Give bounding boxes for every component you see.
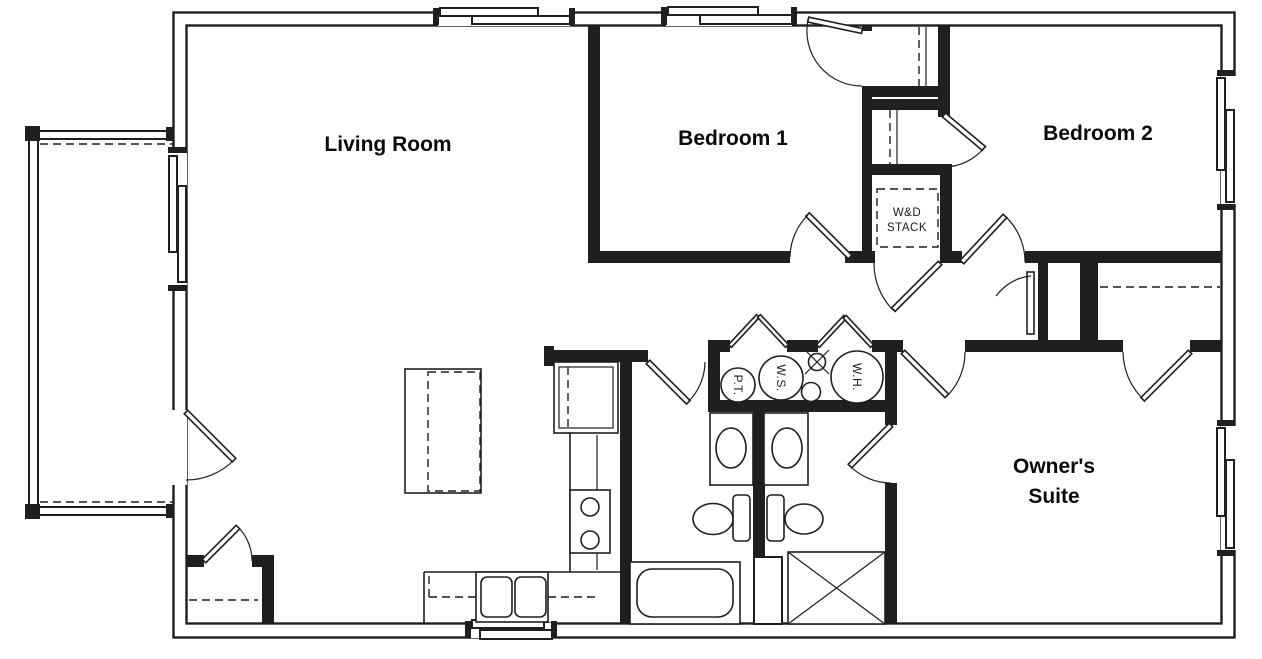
patio-rail-top [29,131,176,139]
wall-closet1-south [862,86,950,97]
wall-linen-west [1038,263,1048,341]
label-bedroom-1: Bedroom 1 [678,127,788,150]
wall-bedroom2-south-stub [948,251,962,263]
floor-drain [802,383,821,402]
pressure-tank-label: P.T. [731,374,745,395]
kitchen-sink [476,572,548,622]
pressure-tank: P.T. [721,368,755,402]
patio-post [25,504,40,519]
water-heater-label: W.H. [850,363,864,391]
exterior-walls [174,13,1235,638]
wall-owners-closet-south-stub [1190,340,1222,352]
patio-door-opening [172,410,187,485]
window-living-room [433,8,575,26]
wall-kitchen-north [548,350,648,362]
wall-ownersbath-east [885,483,897,624]
wall-bedroom2-west-upper [938,25,950,117]
wall-between-baths-chunk [754,557,782,624]
wall-owners-north [965,340,1123,352]
bathtub [630,562,740,624]
wall-closet1-stub [862,25,872,31]
label-owners-suite-1: Owner's [1013,455,1095,478]
vanity-owners-bath [764,413,808,485]
kitchen-island [405,369,481,493]
wall-closet2-south [862,164,950,175]
exterior-wall-outline [174,13,1235,638]
wall-ownersbath-east-stub [885,412,897,425]
shower [788,552,885,624]
refrigerator [554,362,618,433]
wall-bedroom2-west-lower [940,164,952,263]
wall-kitchen-north-post [544,346,554,366]
label-bedroom-2: Bedroom 2 [1043,122,1153,145]
wall-utility-north [787,340,818,352]
water-softener-label: W.S. [774,364,788,391]
water-softener: W.S. [759,356,803,400]
window-bedroom-1 [661,7,797,26]
light-fixture [805,350,829,374]
patio-post [25,126,40,141]
wall-bedroom2-south [1025,251,1222,263]
patio-rail-left [29,131,38,515]
window-kitchen [465,620,557,639]
washer-dryer-label-1: W&D [893,207,921,219]
vanity-hall-bath [710,413,753,485]
washer-dryer-label-2: STACK [887,222,927,234]
patio-rail-bottom [29,507,176,515]
water-heater: W.H. [831,351,883,403]
range [570,490,610,553]
wall-living-bedroom1 [588,25,600,253]
wall-owners-closet-west [1080,263,1098,341]
floor-plan-canvas: W&D STACK P.T. W.S. W.H. [0,0,1262,659]
wall-entry-closet-east [262,555,274,624]
wall-bedroom1-south [588,251,790,263]
patio-deck [25,126,178,519]
window-patio [168,147,187,291]
label-living-room: Living Room [324,133,451,156]
wall-entry-closet-stub [186,555,204,567]
wall-closet2-north [862,99,950,110]
floor-plan: W&D STACK P.T. W.S. W.H. [0,0,1262,659]
label-owners-suite-2: Suite [1028,485,1079,508]
